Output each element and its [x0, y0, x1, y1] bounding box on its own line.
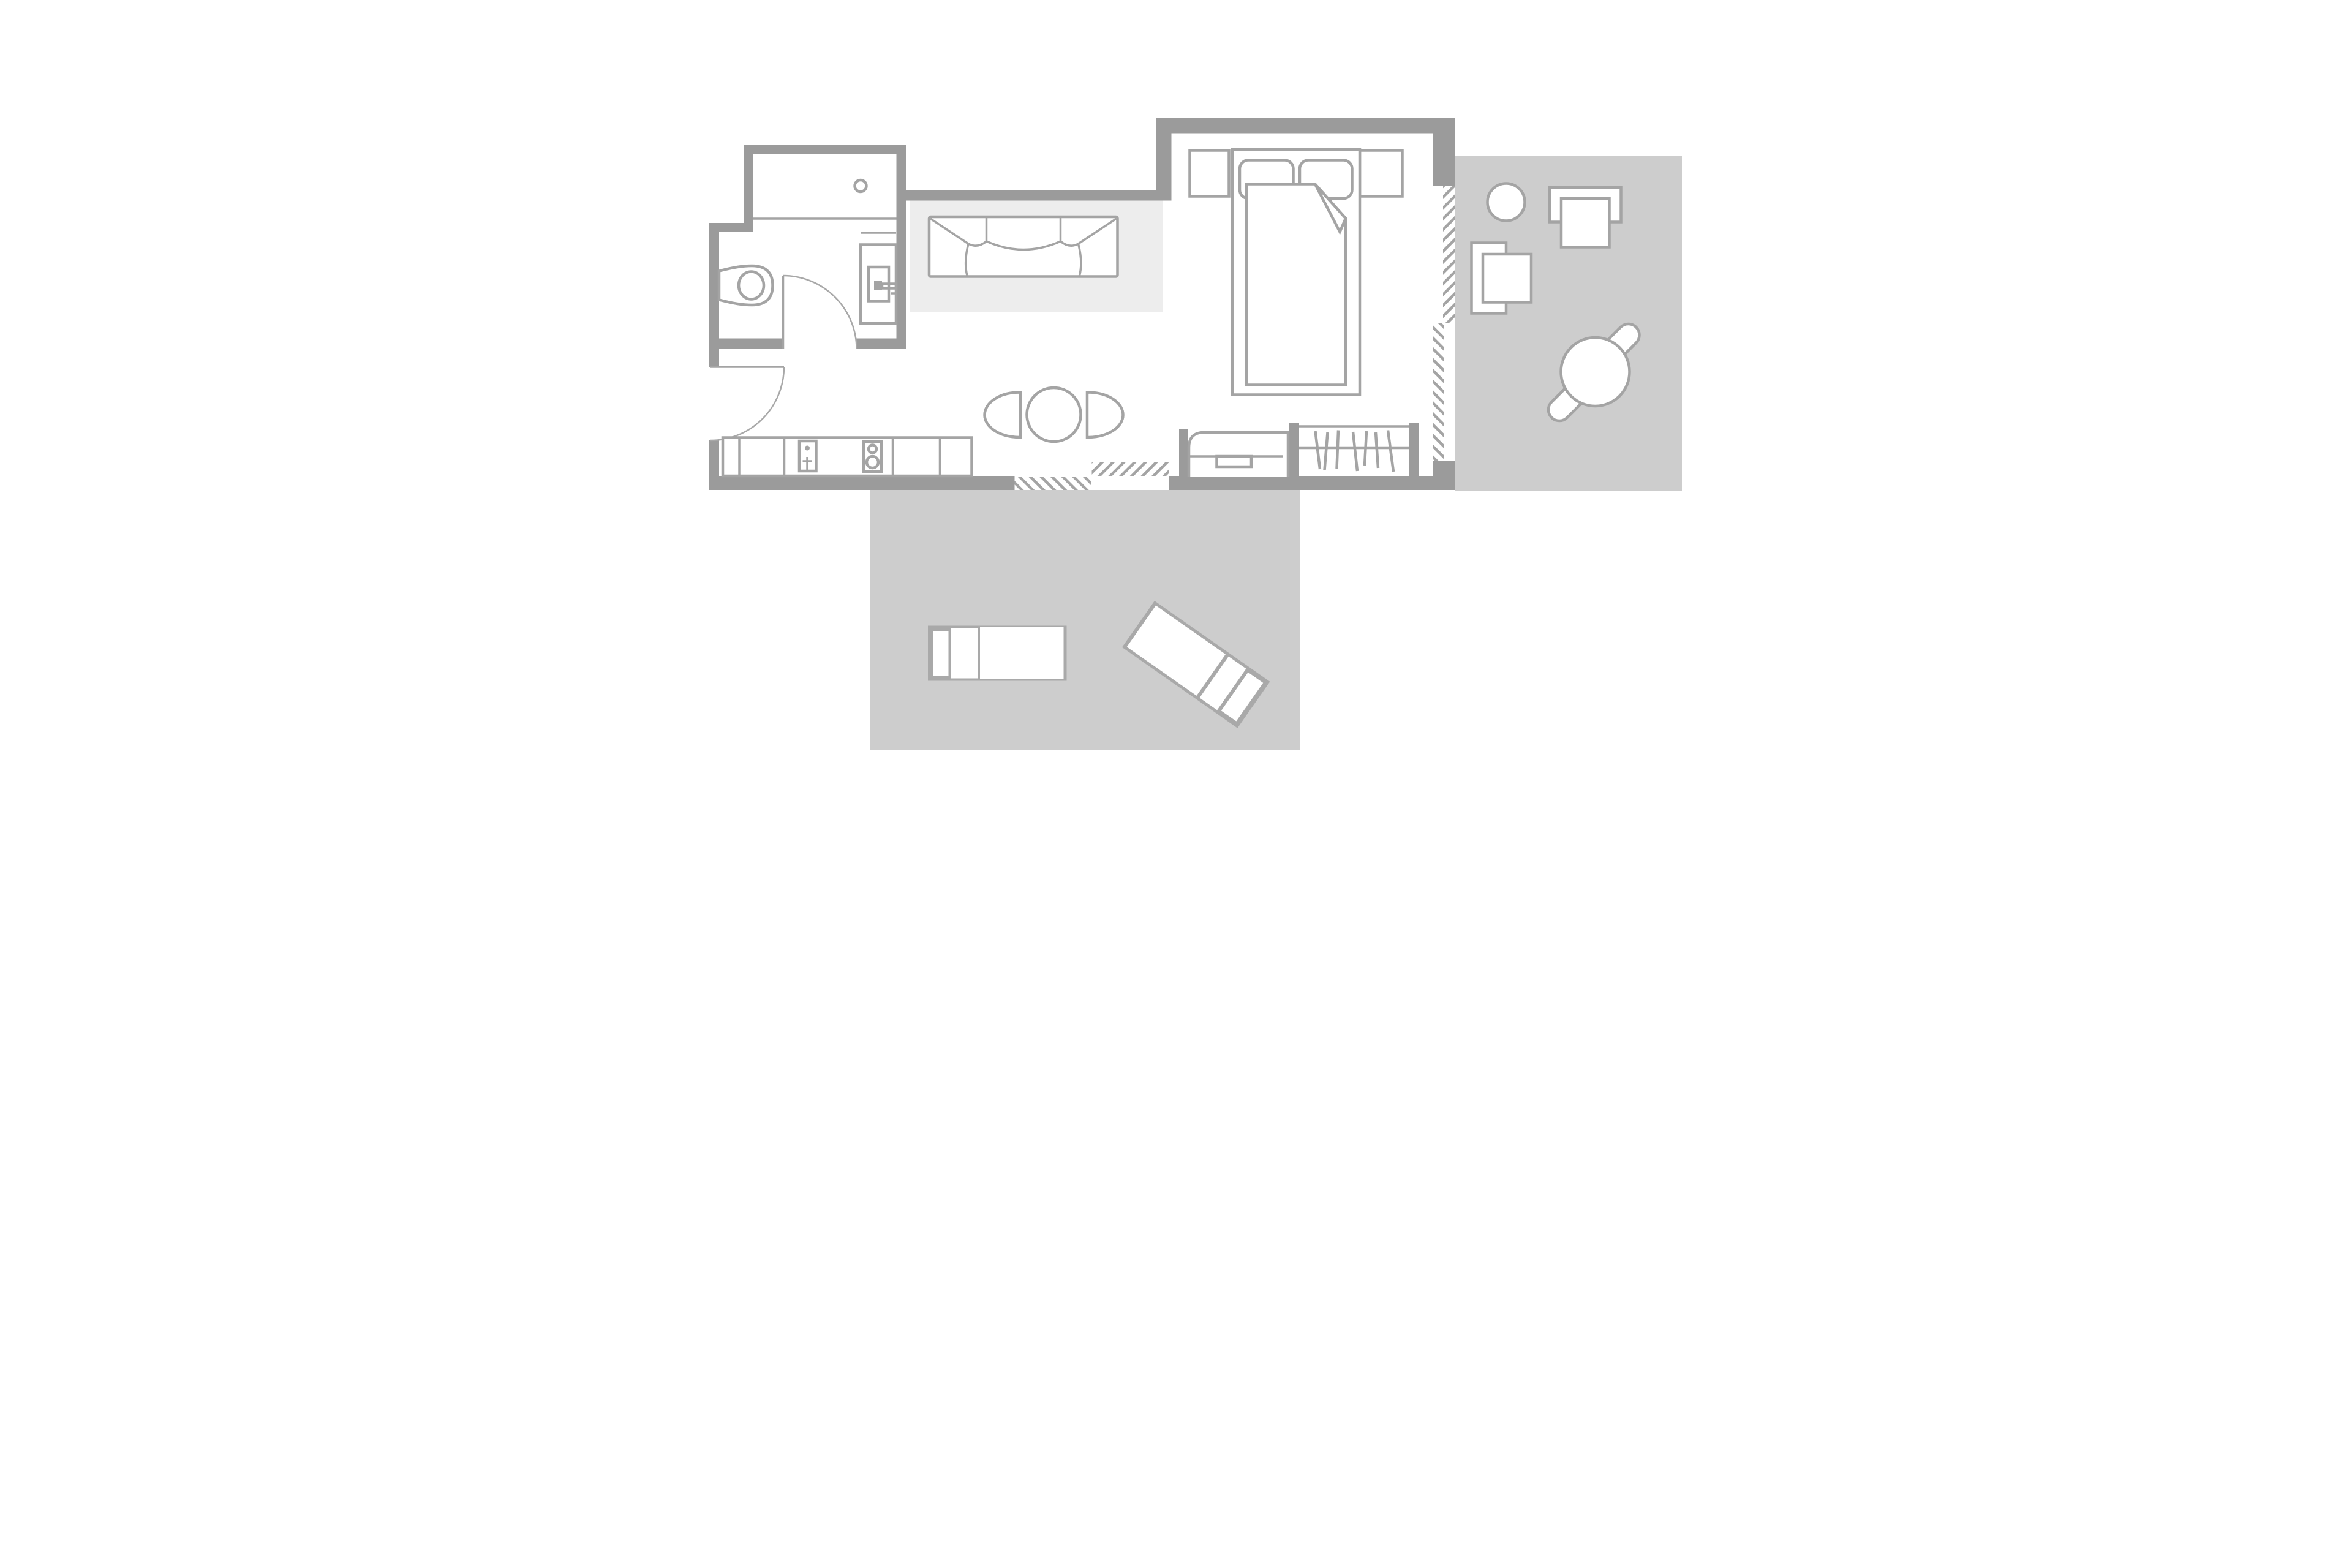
kitchen [723, 438, 972, 477]
dining-chair-left [985, 393, 1021, 438]
wall-bedroom-top [1156, 118, 1455, 134]
bench-outline [1189, 432, 1288, 477]
bench-daybed [1189, 432, 1288, 477]
round-terrace-table [1561, 337, 1630, 406]
wall-stub-bench [1179, 429, 1188, 476]
bathtub-drain [855, 180, 867, 192]
entry-door [710, 367, 784, 440]
sliding-door-panel-open [1092, 462, 1170, 476]
lounger-headrest [933, 631, 949, 676]
bedroom [1190, 149, 1403, 395]
toilet [719, 266, 773, 305]
window-hatch-right-lower [1433, 323, 1444, 461]
sink-drain [805, 446, 810, 451]
wall-right-upper-block [1433, 134, 1455, 186]
sliding-door-panel-fixed [1015, 477, 1091, 490]
armchair-facing-right [1472, 243, 1532, 314]
wall-bottom-left [709, 476, 1015, 490]
lounger-body [980, 627, 1064, 679]
washbasin [861, 233, 896, 323]
wardrobe [1299, 426, 1409, 472]
wall-alcove-top [897, 190, 1172, 201]
window-hatch-right-upper [1443, 186, 1455, 323]
dining-set [985, 388, 1123, 442]
wall-bathroom-left-upper [744, 145, 754, 232]
dining-chair-right [1087, 393, 1123, 438]
kitchen-counter [723, 438, 972, 477]
nightstand-right [1360, 151, 1403, 197]
nightstand-left [1190, 151, 1229, 197]
floor-plan-svg [588, 0, 1764, 784]
sofa-outline [929, 217, 1118, 277]
floor-plan-page [588, 0, 1764, 784]
wall-bathroom-bottom-right [857, 339, 907, 350]
wardrobe-hangers [1316, 431, 1394, 472]
round-dining-table [1027, 388, 1081, 442]
wall-bathroom-bottom-left [709, 339, 783, 350]
entry-door-swing [710, 367, 784, 440]
lounger-seat [951, 628, 978, 679]
side-terrace [1455, 156, 1682, 491]
wall-bathroom-top [744, 145, 907, 154]
sofa [929, 217, 1118, 277]
wall-stub-wardrobe-left [1289, 423, 1299, 476]
wall-stub-wardrobe-right [1409, 423, 1419, 476]
sun-lounger-straight [928, 626, 1067, 681]
armchair-seat [1483, 254, 1531, 303]
wall-bottom-right [1169, 476, 1455, 490]
bathroom-door-swing [783, 276, 857, 349]
side-table-round [1488, 184, 1525, 221]
bathroom-door [783, 276, 857, 349]
armchair-seat [1561, 198, 1610, 247]
wall-bathroom-right [897, 145, 907, 349]
lower-terrace [870, 490, 1300, 750]
armchair-facing-down [1550, 187, 1621, 247]
